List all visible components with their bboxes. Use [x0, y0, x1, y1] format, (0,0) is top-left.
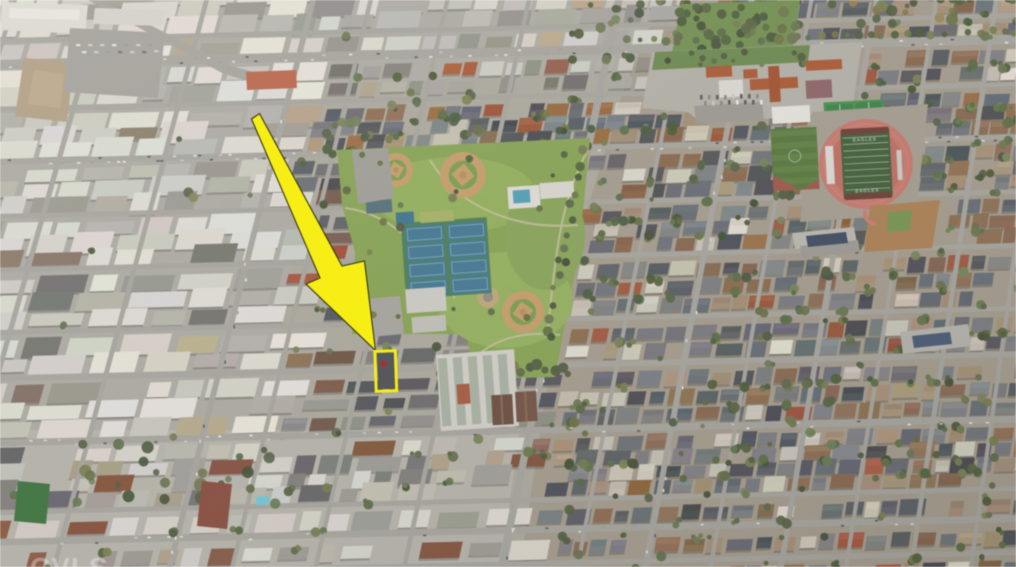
- svg-text:CVLS: CVLS: [30, 552, 109, 567]
